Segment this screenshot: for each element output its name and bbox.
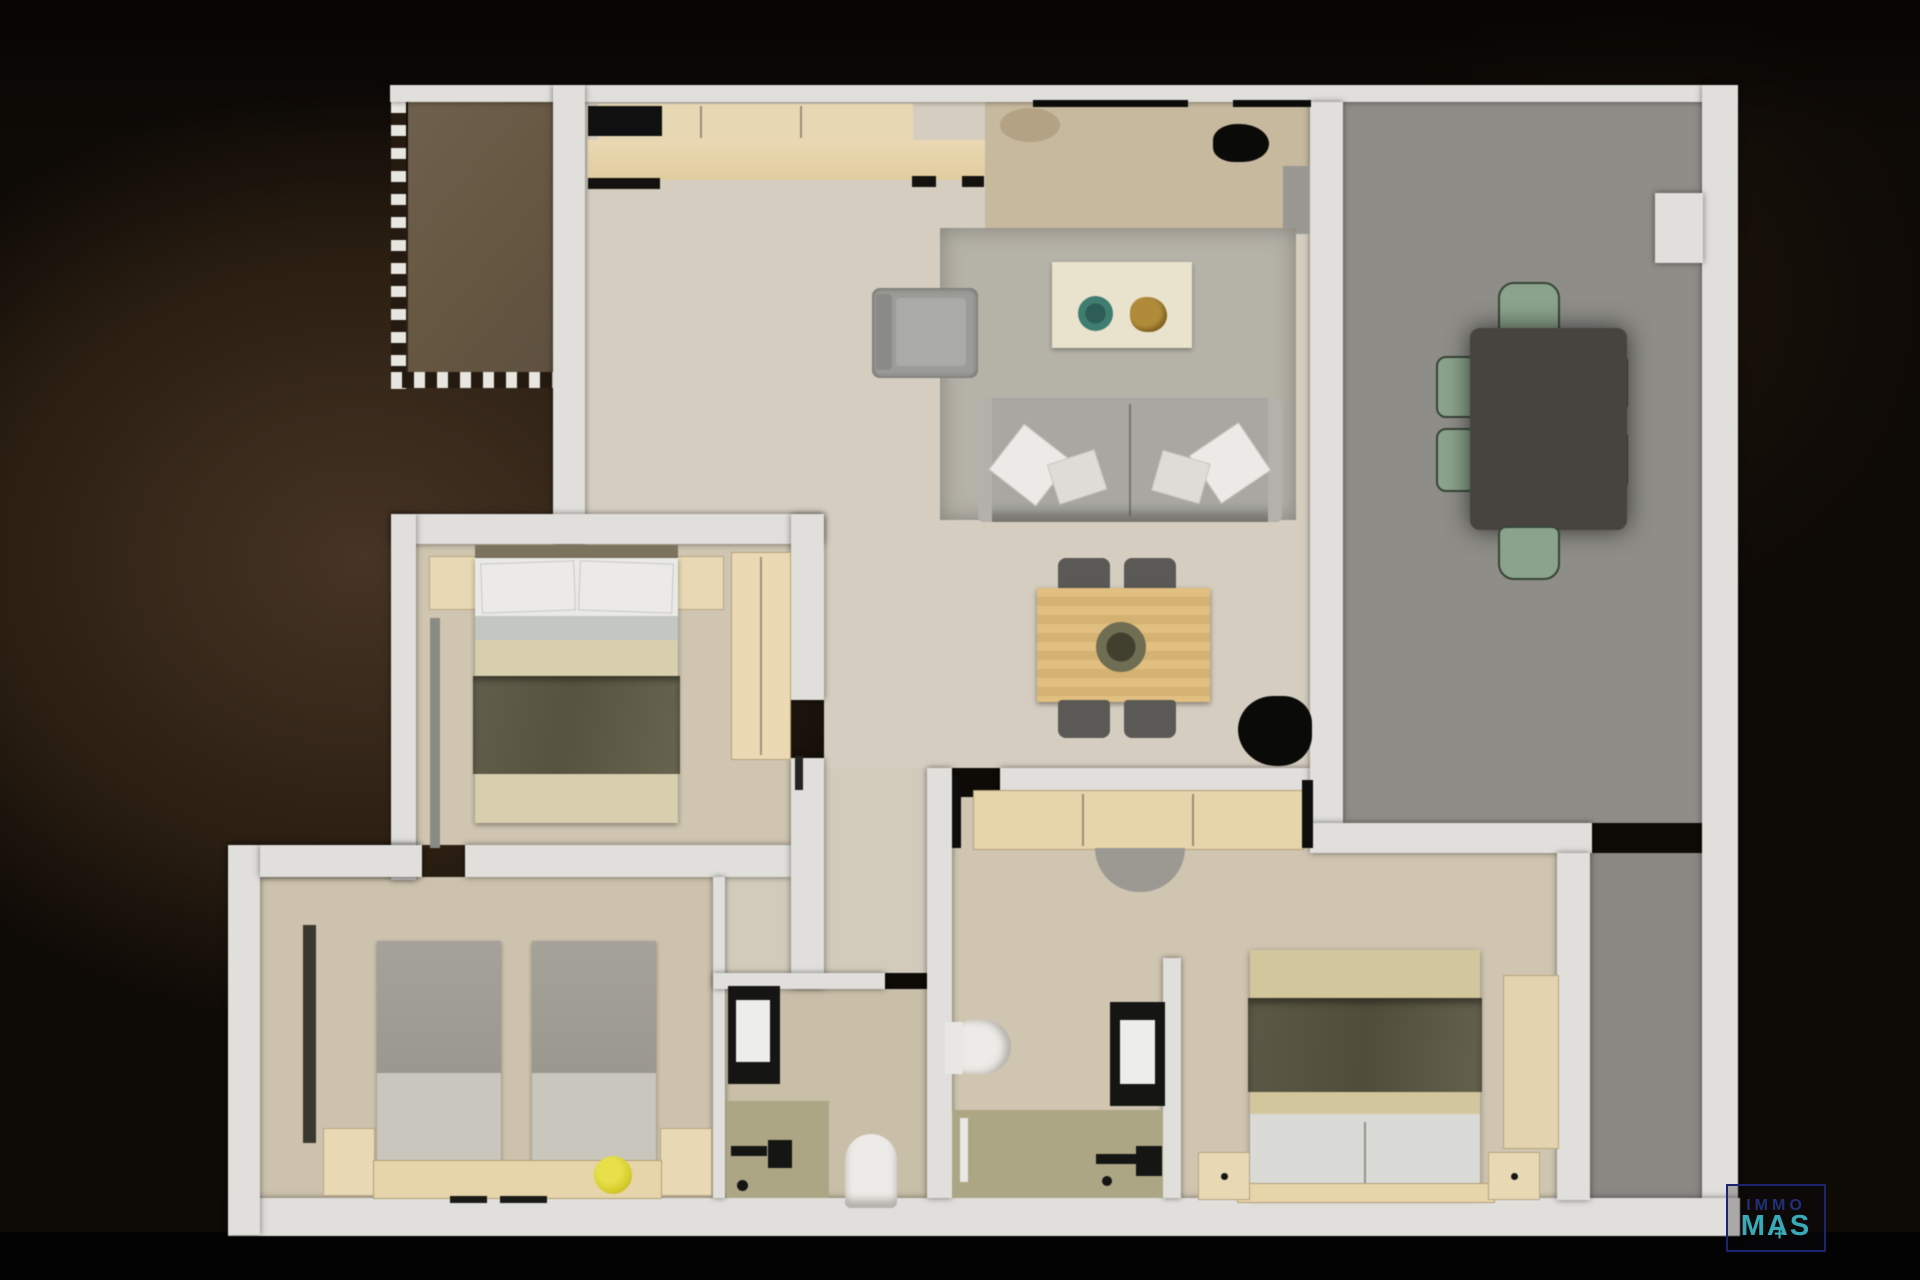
master-nightstand-left bbox=[1198, 1152, 1250, 1200]
double-bedroom-door-handle bbox=[795, 756, 803, 790]
dining-chair-bottom-right bbox=[1124, 700, 1176, 738]
wall-bedroom-double-south-a bbox=[260, 845, 422, 877]
wall-bedroom-double-east-a bbox=[791, 514, 824, 700]
ensuite-vanity bbox=[1110, 1002, 1165, 1106]
wall-terrace-west bbox=[1310, 102, 1343, 823]
wall-bathroom1-west bbox=[713, 877, 725, 1198]
console-seam-1 bbox=[1082, 794, 1084, 846]
sofa-center-seam bbox=[1129, 404, 1131, 516]
armchair bbox=[872, 288, 978, 378]
twin-floor-mark-2 bbox=[500, 1196, 547, 1203]
wall-bottom bbox=[228, 1198, 1740, 1236]
console-seam-2 bbox=[1192, 794, 1194, 846]
shower1-arm bbox=[731, 1146, 767, 1156]
double-bed-pillow-left bbox=[480, 560, 576, 613]
master-bed-khaki-band bbox=[1250, 1092, 1480, 1114]
counter-base-3 bbox=[962, 176, 984, 187]
wall-twin-west bbox=[228, 845, 260, 1235]
window-track-2 bbox=[1233, 100, 1311, 107]
ensuite-shower bbox=[952, 1110, 1163, 1198]
door-jamb-west bbox=[952, 776, 961, 848]
teal-tray bbox=[1078, 296, 1113, 331]
master-pillow-seam bbox=[1364, 1122, 1366, 1190]
twin-bed-left bbox=[377, 941, 501, 1163]
double-bed-sheet-band bbox=[475, 616, 678, 640]
twin-nightstand-left bbox=[323, 1128, 375, 1196]
wall-bedroom-double-east-b bbox=[791, 758, 824, 988]
cabinet-divider-2 bbox=[800, 106, 802, 138]
bathroom1-vanity bbox=[728, 986, 780, 1084]
ensuite-sink bbox=[1120, 1020, 1155, 1084]
bedroom-double-wall-strip bbox=[430, 618, 440, 848]
ensuite-shower-strip bbox=[960, 1118, 968, 1182]
wall-kitchen-west bbox=[553, 85, 585, 544]
wardrobe-seam bbox=[760, 557, 762, 755]
hallway-floor-south bbox=[725, 877, 927, 973]
master-wardrobe bbox=[1503, 975, 1559, 1149]
double-bed-pillow-zone bbox=[475, 558, 678, 616]
shower2-arm bbox=[1096, 1154, 1136, 1164]
terrace-dining-table bbox=[1470, 328, 1627, 530]
wall-terrace-south bbox=[1310, 823, 1592, 853]
balcony-dashed-edge-bottom bbox=[391, 372, 553, 388]
double-bed-blanket bbox=[473, 676, 680, 774]
master-nightstand-left-knob bbox=[1221, 1173, 1228, 1180]
master-bed-blanket bbox=[1248, 998, 1482, 1092]
armchair-seat bbox=[896, 298, 966, 366]
apartment-floorplan bbox=[0, 0, 1920, 1280]
shower2-head bbox=[1136, 1146, 1162, 1176]
yellow-stool bbox=[594, 1156, 632, 1194]
twin-bed-left-blanket bbox=[377, 941, 501, 1073]
double-nightstand-left bbox=[429, 556, 477, 610]
twin-bed-right bbox=[532, 941, 656, 1163]
floorplan-render-scene: IMMO MAS + bbox=[0, 0, 1920, 1280]
double-bed bbox=[475, 558, 678, 823]
entry-floor-smudge bbox=[1000, 108, 1060, 142]
wall-bedroom-double-west bbox=[391, 514, 416, 880]
balcony-floor bbox=[408, 102, 553, 388]
kitchen-counter bbox=[588, 140, 985, 180]
shower2-drain bbox=[1102, 1176, 1112, 1186]
wall-bedroom-double-south-b bbox=[465, 845, 791, 877]
wall-ensuite-divider bbox=[1163, 958, 1181, 1198]
black-plant bbox=[1238, 696, 1312, 766]
gold-decor bbox=[1130, 297, 1167, 332]
wall-suite-west bbox=[927, 768, 952, 1198]
twin-wall-strip bbox=[303, 925, 316, 1143]
wall-pillar bbox=[1655, 193, 1703, 263]
master-nightstand-right bbox=[1488, 1152, 1540, 1200]
counter-base-1 bbox=[588, 178, 660, 189]
bathroom1-sink bbox=[736, 1000, 770, 1062]
double-bed-headboard bbox=[475, 545, 678, 558]
coffee-table bbox=[1052, 262, 1192, 348]
shower1-head bbox=[768, 1140, 792, 1168]
double-bedroom-wardrobe bbox=[731, 552, 791, 760]
twin-nightstand-right bbox=[660, 1128, 712, 1196]
bathroom1-toilet bbox=[845, 1134, 897, 1208]
double-nightstand-right bbox=[676, 556, 724, 610]
cabinet-divider-1 bbox=[700, 106, 702, 138]
dining-centerpiece bbox=[1096, 622, 1146, 672]
master-bed bbox=[1250, 950, 1480, 1197]
ensuite-toilet-tank bbox=[945, 1022, 963, 1074]
master-nightstand-right-knob bbox=[1511, 1173, 1518, 1180]
balcony-dashed-edge-left bbox=[391, 102, 406, 390]
armchair-back bbox=[876, 294, 892, 370]
sofa-armrest-right bbox=[1268, 398, 1282, 522]
bathroom1-shower bbox=[727, 1101, 829, 1198]
dining-chair-bottom-left bbox=[1058, 700, 1110, 738]
wall-bedroom-double-north bbox=[391, 514, 824, 544]
window-track-1 bbox=[1033, 100, 1188, 107]
counter-base-2 bbox=[912, 176, 936, 187]
twin-bed-right-blanket bbox=[532, 941, 656, 1073]
master-headboard-bar bbox=[1237, 1183, 1495, 1203]
sofa bbox=[978, 398, 1282, 522]
wall-master-east bbox=[1557, 853, 1590, 1200]
console-sideboard bbox=[973, 790, 1304, 850]
entry-door-leaf bbox=[1283, 166, 1310, 234]
double-bed-pillow-right bbox=[578, 560, 674, 613]
logo-plus-icon: + bbox=[1774, 1224, 1785, 1246]
entry-decor bbox=[1213, 124, 1269, 162]
terrace-chair-bottom bbox=[1498, 526, 1560, 580]
door-jamb-east bbox=[1302, 780, 1313, 848]
sofa-armrest-left bbox=[978, 398, 992, 522]
shower1-drain bbox=[737, 1180, 748, 1191]
kitchen-appliance bbox=[588, 106, 662, 136]
twin-floor-mark-1 bbox=[450, 1196, 487, 1203]
terrace-strip-floor bbox=[1590, 853, 1702, 1198]
immo-mas-logo: IMMO MAS + bbox=[1726, 1184, 1826, 1252]
master-bed-khaki-top bbox=[1250, 950, 1480, 998]
wall-right bbox=[1702, 85, 1738, 1235]
